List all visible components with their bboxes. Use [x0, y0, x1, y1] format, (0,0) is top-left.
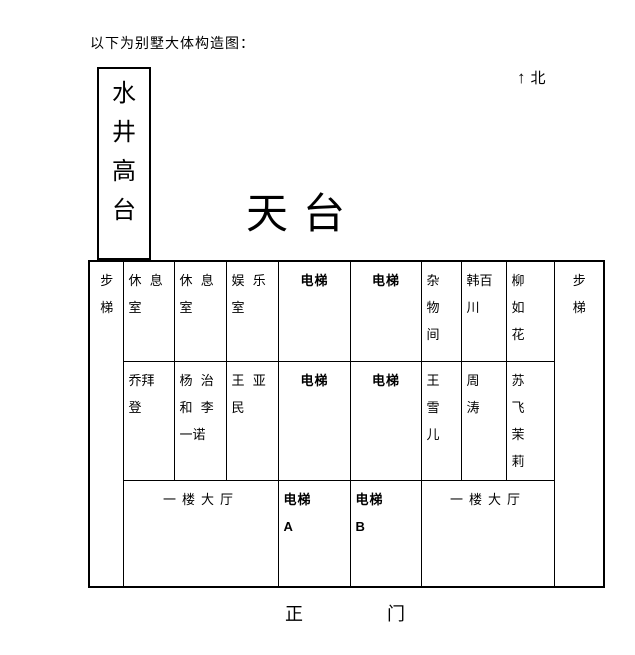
room-rest-1: 休 息 室: [123, 261, 174, 361]
elevator-b: 电梯 B: [350, 480, 421, 587]
room-wang-xueer: 王 雪 儿: [421, 361, 461, 480]
room-rest-2: 休 息 室: [174, 261, 226, 361]
elevator-shaft-a-middle: 电梯: [278, 361, 350, 480]
stairs-left: 步 梯: [89, 261, 123, 587]
table-row-ground-floor: 一楼大厅 电梯 A 电梯 B 一楼大厅: [89, 480, 604, 587]
floor-plan-table: 步 梯 休 息 室 休 息 室 娱 乐 室 电梯 电梯 杂 物 间 韩百 川 柳…: [88, 260, 605, 588]
stairs-right: 步 梯: [554, 261, 604, 587]
hall-first-floor-right: 一楼大厅: [421, 480, 554, 587]
table-row-middle-floor: 乔拜 登 杨 治 和 李 一诺 王 亚 民 电梯 电梯 王 雪 儿 周 涛 苏 …: [89, 361, 604, 480]
table-row-upper-floor: 步 梯 休 息 室 休 息 室 娱 乐 室 电梯 电梯 杂 物 间 韩百 川 柳…: [89, 261, 604, 361]
villa-structure-diagram: 以下为别墅大体构造图： ↑ 北 水 井 高 台 天台 步 梯 休 息 室 休 息…: [0, 0, 635, 655]
rooftop-label: 天台: [246, 180, 360, 241]
room-qiao-baideng: 乔拜 登: [123, 361, 174, 480]
well-platform: 水 井 高 台: [97, 67, 151, 260]
elevator-shaft-b-upper: 电梯: [350, 261, 421, 361]
elevator-shaft-a-upper: 电梯: [278, 261, 350, 361]
north-indicator: ↑ 北: [517, 67, 546, 88]
diagram-caption: 以下为别墅大体构造图：: [90, 33, 255, 53]
room-zhou-tao: 周 涛: [461, 361, 506, 480]
north-label: 北: [531, 67, 546, 88]
main-gate-left-char: 正: [285, 600, 303, 626]
elevator-a: 电梯 A: [278, 480, 350, 587]
room-yang-zhihe-li-yinuo: 杨 治 和 李 一诺: [174, 361, 226, 480]
main-gate-label: 正 门: [285, 600, 405, 626]
room-wang-yamin: 王 亚 民: [226, 361, 278, 480]
room-han-baichuan: 韩百 川: [461, 261, 506, 361]
room-entertainment: 娱 乐 室: [226, 261, 278, 361]
elevator-shaft-b-middle: 电梯: [350, 361, 421, 480]
hall-first-floor-left: 一楼大厅: [123, 480, 278, 587]
room-su-fei-moli: 苏 飞 茉 莉: [506, 361, 554, 480]
main-gate-right-char: 门: [387, 600, 405, 626]
north-arrow-icon: ↑: [517, 68, 526, 88]
room-storage: 杂 物 间: [421, 261, 461, 361]
room-liu-ruhua: 柳 如 花: [506, 261, 554, 361]
